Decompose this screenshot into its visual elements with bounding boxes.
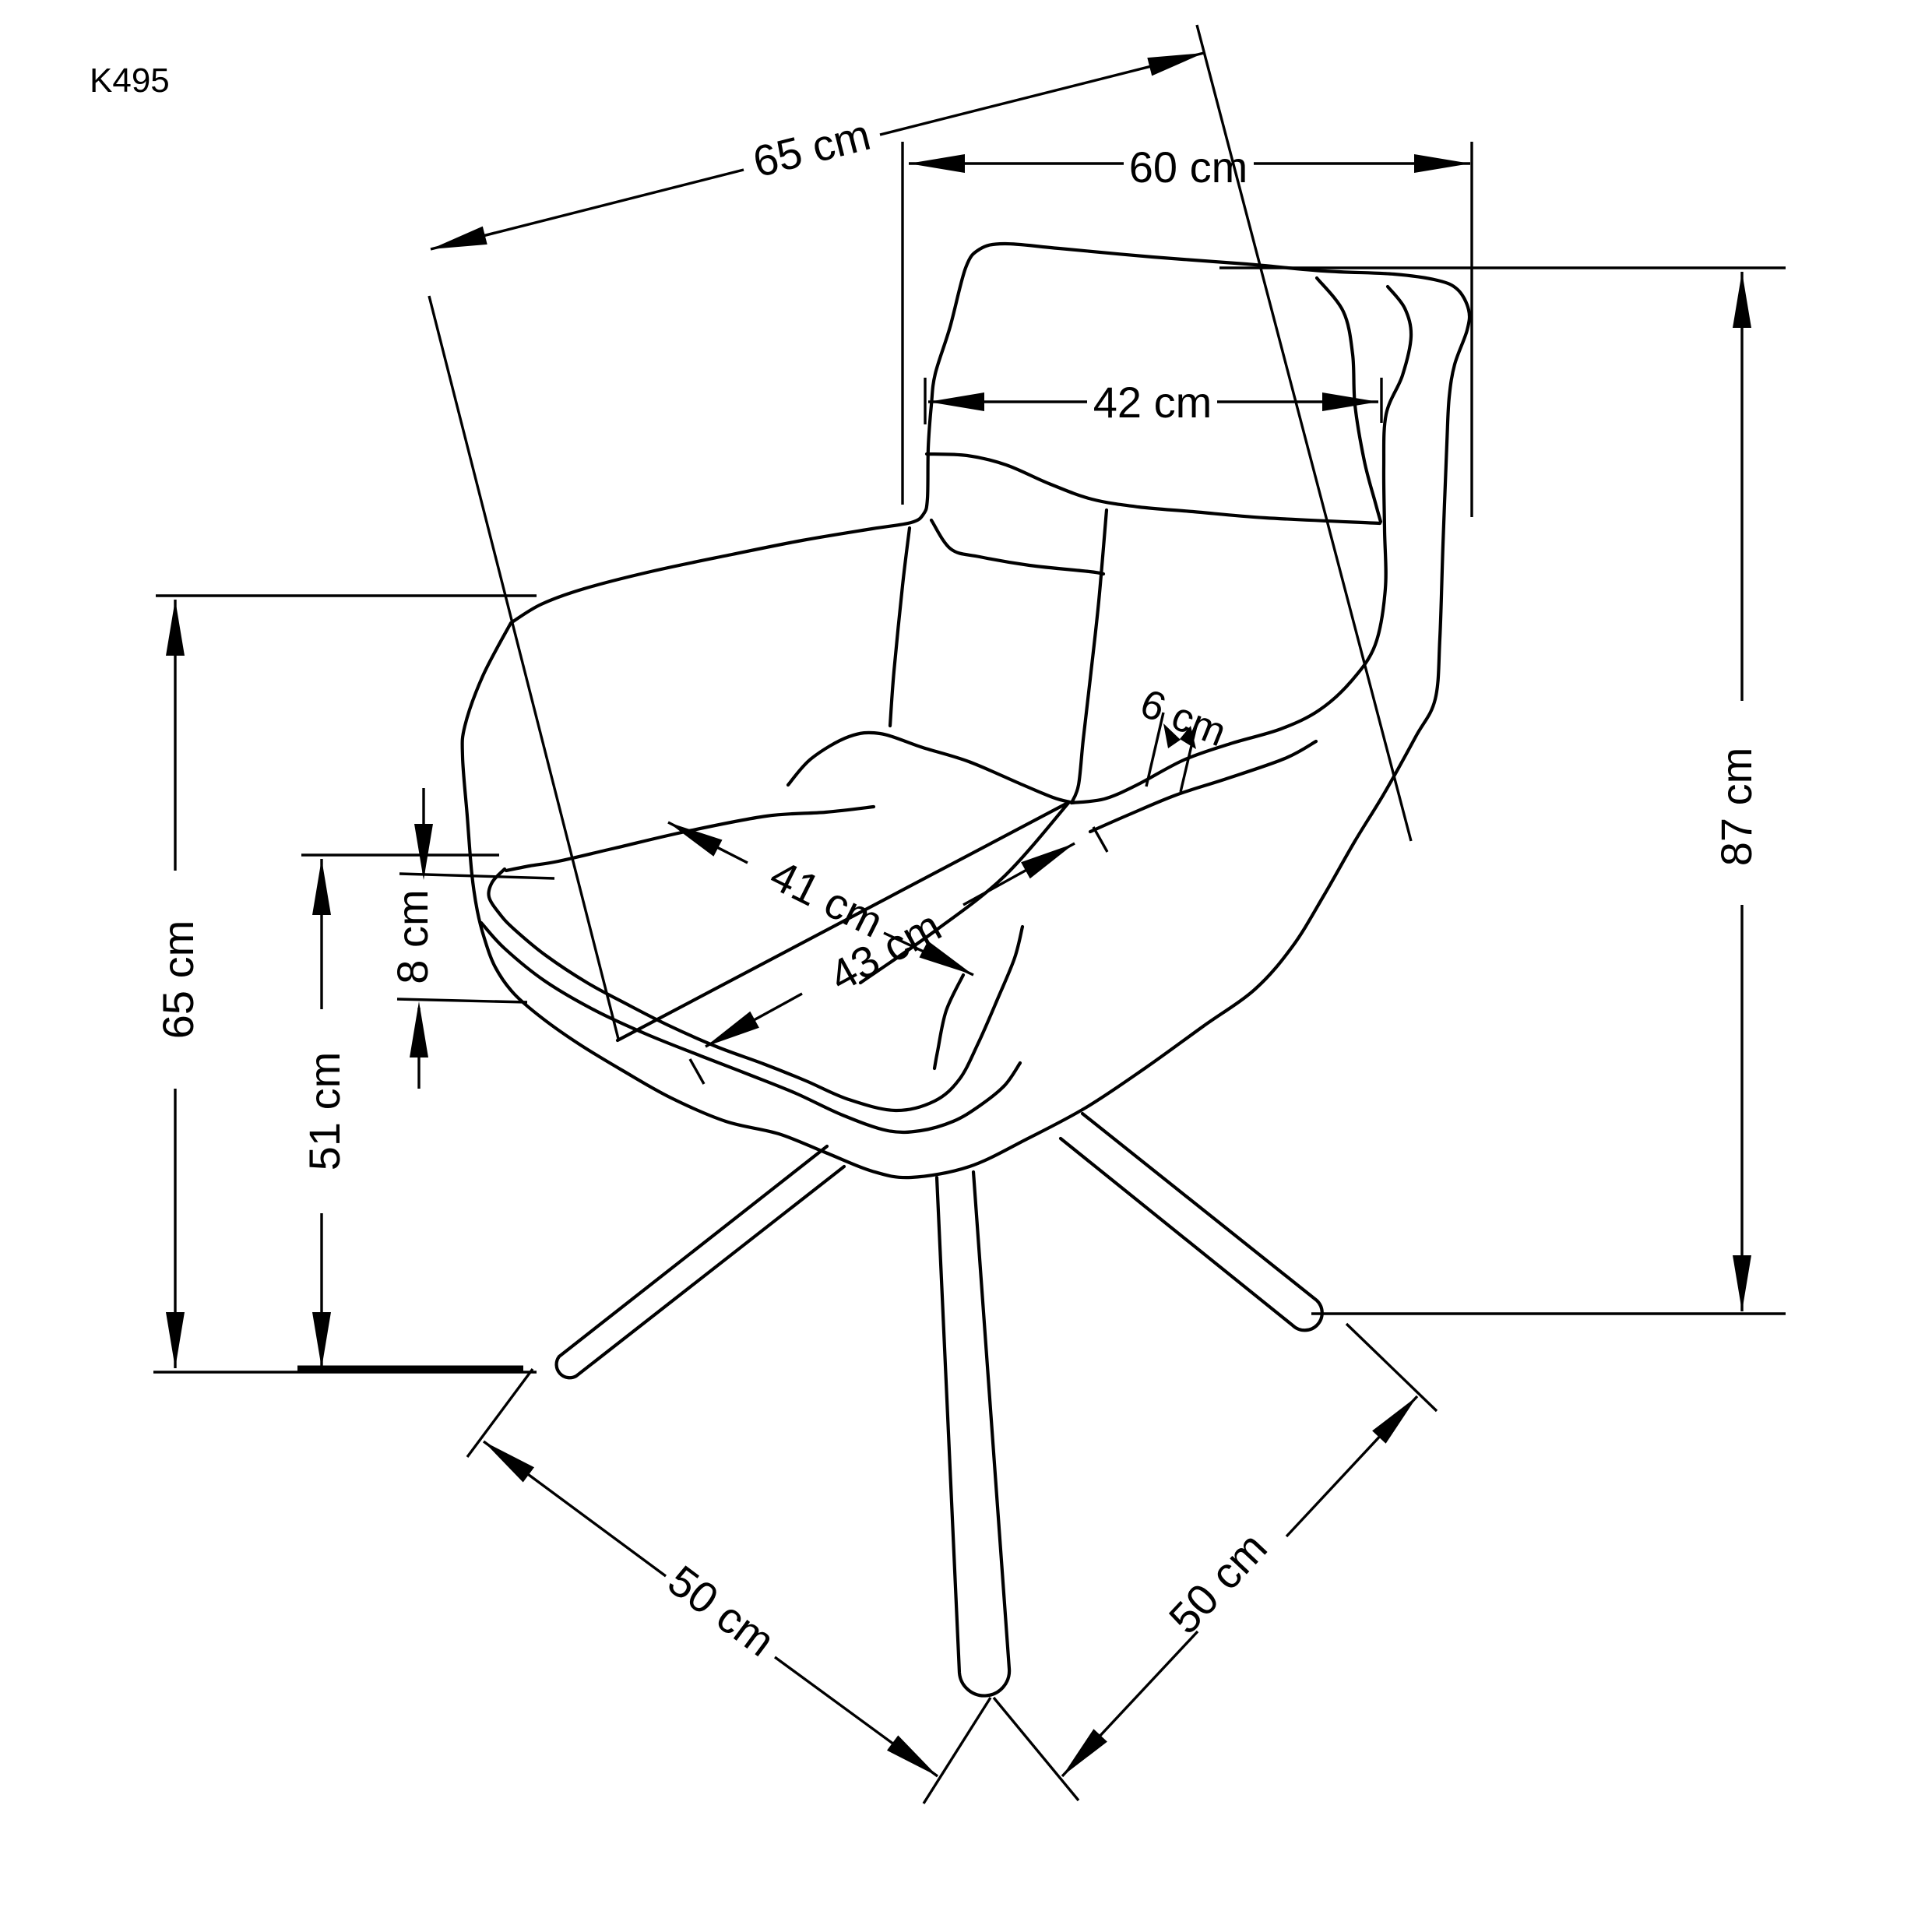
svg-text:87 cm: 87 cm [1712,748,1761,867]
svg-text:65 cm: 65 cm [153,920,202,1040]
svg-text:K495: K495 [90,62,170,100]
svg-text:8 cm: 8 cm [388,889,437,984]
svg-text:60 cm: 60 cm [1129,143,1248,192]
svg-text:42 cm: 42 cm [1093,378,1212,427]
svg-text:51 cm: 51 cm [300,1052,349,1171]
